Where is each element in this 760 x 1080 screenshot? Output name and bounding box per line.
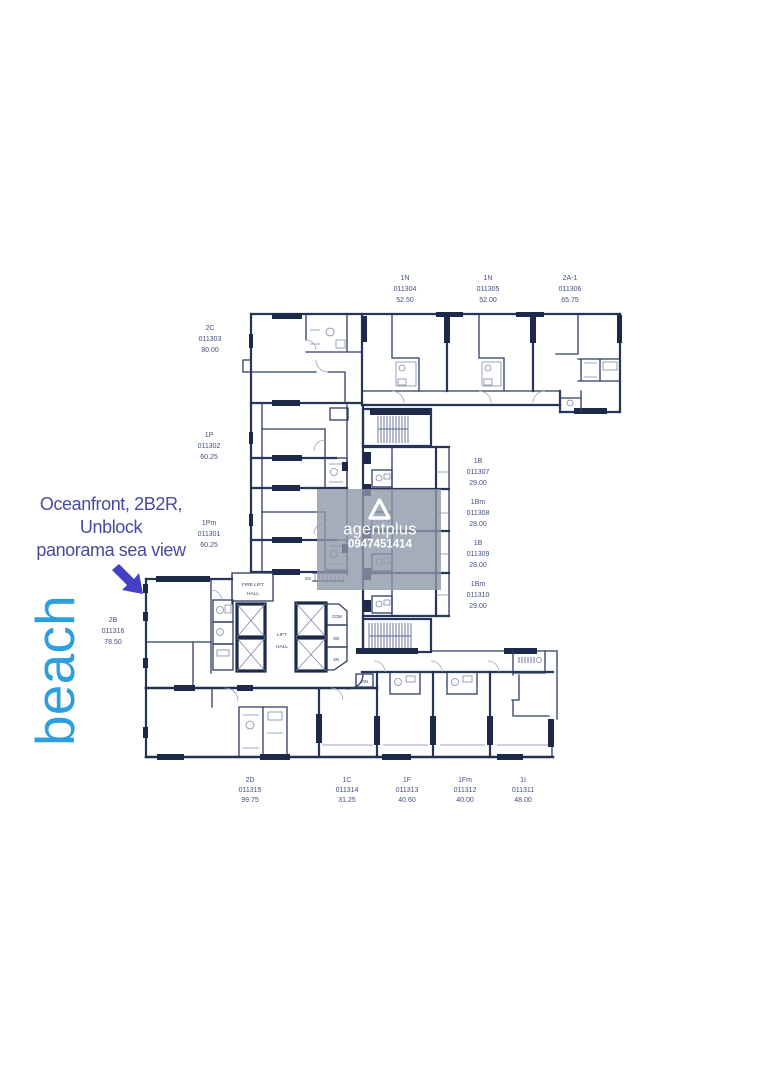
- svg-text:GB: GB: [333, 636, 339, 641]
- svg-text:1I: 1I: [520, 777, 526, 784]
- svg-text:1C: 1C: [343, 777, 352, 784]
- svg-text:28.00: 28.00: [469, 562, 487, 569]
- svg-text:1Pm: 1Pm: [202, 520, 217, 527]
- svg-text:29.00: 29.00: [469, 480, 487, 487]
- svg-text:1F: 1F: [403, 777, 411, 784]
- svg-text:011311: 011311: [512, 787, 534, 794]
- svg-text:011303: 011303: [199, 336, 222, 343]
- svg-text:28.00: 28.00: [469, 521, 487, 528]
- svg-text:1N: 1N: [484, 275, 493, 282]
- svg-text:1N: 1N: [401, 275, 410, 282]
- svg-text:2C: 2C: [206, 325, 215, 332]
- svg-text:HALL: HALL: [276, 644, 288, 650]
- svg-text:011302: 011302: [198, 443, 221, 450]
- svg-text:011304: 011304: [394, 286, 417, 293]
- svg-text:52.50: 52.50: [396, 297, 414, 304]
- svg-text:65.75: 65.75: [561, 297, 579, 304]
- svg-text:Oceanfront, 2B2R,: Oceanfront, 2B2R,: [40, 494, 182, 514]
- svg-text:HALL: HALL: [247, 591, 259, 597]
- svg-text:1Bm: 1Bm: [471, 581, 486, 588]
- svg-text:011316: 011316: [102, 628, 125, 635]
- svg-text:60.25: 60.25: [200, 542, 218, 549]
- svg-text:LIFT: LIFT: [277, 632, 287, 638]
- svg-text:011313: 011313: [396, 787, 419, 794]
- svg-text:011315: 011315: [239, 787, 262, 794]
- svg-text:COM: COM: [332, 614, 342, 619]
- svg-text:011314: 011314: [336, 787, 359, 794]
- svg-text:panorama sea view: panorama sea view: [36, 540, 187, 560]
- svg-text:0947451414: 0947451414: [348, 539, 413, 551]
- svg-text:SN: SN: [362, 679, 368, 684]
- svg-text:ES: ES: [305, 576, 311, 581]
- svg-text:011309: 011309: [467, 551, 490, 558]
- svg-text:agentplus: agentplus: [343, 521, 416, 539]
- svg-text:011307: 011307: [467, 469, 490, 476]
- svg-text:99.75: 99.75: [241, 797, 259, 804]
- svg-text:1B: 1B: [474, 540, 483, 547]
- svg-text:1B: 1B: [474, 458, 483, 465]
- svg-text:31.25: 31.25: [338, 797, 356, 804]
- svg-text:1Bm: 1Bm: [471, 499, 486, 506]
- svg-text:011306: 011306: [559, 286, 582, 293]
- svg-text:40.60: 40.60: [398, 797, 416, 804]
- svg-text:29.00: 29.00: [469, 603, 487, 610]
- svg-text:011308: 011308: [467, 510, 490, 517]
- svg-text:011310: 011310: [467, 592, 490, 599]
- svg-text:Unblock: Unblock: [80, 517, 144, 537]
- svg-text:40.00: 40.00: [456, 797, 474, 804]
- svg-text:80.00: 80.00: [201, 347, 219, 354]
- svg-text:2B: 2B: [109, 617, 118, 624]
- svg-text:60.25: 60.25: [200, 454, 218, 461]
- svg-text:beach: beach: [24, 595, 86, 746]
- svg-text:FIRE LIFT: FIRE LIFT: [242, 582, 264, 588]
- svg-text:011305: 011305: [477, 286, 500, 293]
- svg-text:SN: SN: [333, 657, 339, 662]
- svg-text:2D: 2D: [246, 777, 255, 784]
- svg-text:011312: 011312: [454, 787, 477, 794]
- svg-text:48.00: 48.00: [514, 797, 532, 804]
- svg-text:52.00: 52.00: [479, 297, 497, 304]
- svg-text:1Fm: 1Fm: [458, 777, 472, 784]
- svg-text:1P: 1P: [205, 432, 214, 439]
- svg-text:78.50: 78.50: [104, 639, 122, 646]
- svg-text:2A-1: 2A-1: [563, 275, 578, 282]
- svg-text:011301: 011301: [198, 531, 221, 538]
